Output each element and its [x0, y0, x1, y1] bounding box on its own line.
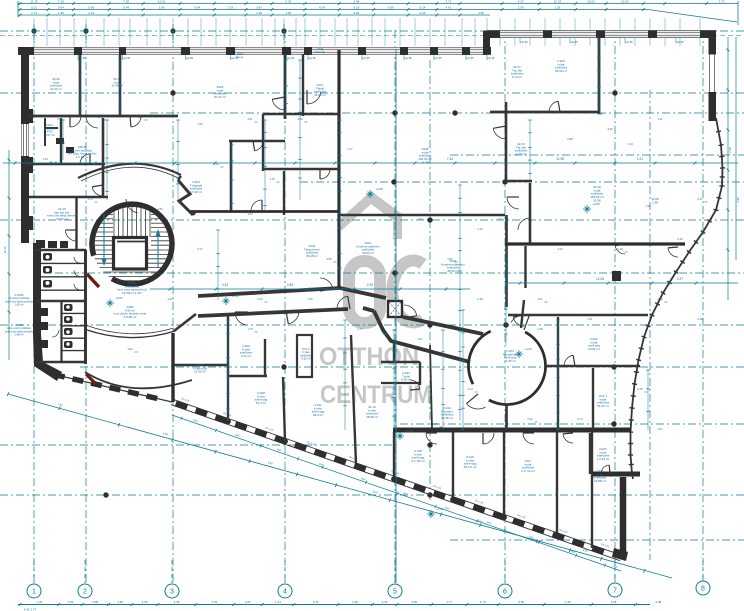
- svg-text:2.46: 2.46: [420, 11, 426, 15]
- svg-text:par 98: par 98: [78, 57, 86, 60]
- svg-text:0.95: 0.95: [382, 332, 388, 336]
- svg-text:3.18: 3.18: [697, 317, 703, 321]
- svg-text:1.44: 1.44: [213, 162, 219, 166]
- svg-text:1.91: 1.91: [212, 600, 218, 604]
- svg-text:2.61: 2.61: [247, 117, 253, 121]
- svg-text:2.86: 2.86: [326, 257, 332, 261]
- svg-text:6: 6: [503, 588, 507, 595]
- svg-text:1.75: 1.75: [247, 327, 253, 331]
- svg-text:2.71: 2.71: [719, 0, 725, 4]
- svg-text:2.12: 2.12: [477, 227, 483, 231]
- svg-text:10.50: 10.50: [587, 0, 595, 4]
- svg-text:3.45: 3.45: [607, 127, 613, 131]
- svg-text:par 98: par 98: [676, 41, 684, 44]
- svg-text:par 98: par 98: [487, 57, 495, 60]
- svg-text:1.18: 1.18: [617, 247, 623, 251]
- svg-text:3.44: 3.44: [247, 212, 253, 216]
- svg-text:7.40: 7.40: [447, 157, 453, 161]
- svg-text:1.82: 1.82: [117, 600, 123, 604]
- svg-text:2.41: 2.41: [537, 297, 543, 301]
- svg-text:0.39: 0.39: [57, 117, 63, 121]
- svg-text:+0.00: +0.00: [231, 294, 239, 298]
- svg-text:+4.68: +4.68: [592, 202, 600, 206]
- svg-text:1.66: 1.66: [67, 600, 73, 604]
- svg-text:par 98: par 98: [520, 41, 528, 44]
- svg-text:5.60: 5.60: [88, 6, 94, 10]
- svg-text:par 98: par 98: [308, 57, 316, 60]
- svg-text:5: 5: [393, 588, 397, 595]
- svg-text:8: 8: [701, 585, 705, 592]
- svg-text:3.98: 3.98: [736, 197, 740, 203]
- svg-text:3.99: 3.99: [297, 117, 303, 121]
- svg-text:2.33: 2.33: [227, 6, 233, 10]
- svg-text:par 98: par 98: [404, 57, 412, 60]
- svg-text:1.28: 1.28: [352, 600, 358, 604]
- svg-text:2.87: 2.87: [245, 600, 251, 604]
- svg-text:0.68: 0.68: [657, 297, 663, 301]
- svg-text:1.35: 1.35: [307, 297, 313, 301]
- svg-text:3.30: 3.30: [411, 600, 417, 604]
- svg-text:6.54: 6.54: [319, 6, 325, 10]
- svg-text:3.92: 3.92: [353, 11, 359, 15]
- svg-text:3: 3: [170, 588, 174, 595]
- svg-text:1.34: 1.34: [36, 600, 42, 604]
- svg-text:1.61: 1.61: [587, 317, 593, 321]
- svg-text:3.79: 3.79: [480, 600, 486, 604]
- svg-text:3.33: 3.33: [222, 283, 228, 287]
- svg-text:2.56: 2.56: [157, 207, 163, 211]
- svg-text:4.29: 4.29: [518, 0, 524, 4]
- svg-text:0243Szem.: 0243Szem.: [236, 52, 244, 59]
- svg-text:2.40: 2.40: [677, 237, 683, 241]
- svg-text:7.18: 7.18: [58, 0, 64, 4]
- svg-text:7.73: 7.73: [445, 0, 451, 4]
- svg-text:4.42 1.77: 4.42 1.77: [24, 608, 37, 611]
- svg-text:CENTRUM: CENTRUM: [320, 381, 432, 409]
- svg-text:0.42: 0.42: [527, 417, 533, 421]
- svg-text:11.16: 11.16: [30, 0, 38, 4]
- svg-text:par 98: par 98: [570, 41, 578, 44]
- svg-text:2.15: 2.15: [88, 11, 94, 15]
- svg-text:par 98: par 98: [466, 57, 474, 60]
- svg-text:6.29: 6.29: [286, 0, 292, 4]
- svg-text:1.64: 1.64: [417, 217, 423, 221]
- svg-text:3.67: 3.67: [256, 6, 262, 10]
- svg-text:1.81: 1.81: [286, 11, 292, 15]
- svg-text:3.56: 3.56: [611, 600, 617, 604]
- svg-text:5.49: 5.49: [123, 6, 129, 10]
- svg-text:par 98: par 98: [362, 57, 370, 60]
- svg-text:2.37: 2.37: [497, 217, 503, 221]
- svg-text:5.24: 5.24: [420, 6, 426, 10]
- svg-text:par 98: par 98: [434, 57, 442, 60]
- svg-text:2.67: 2.67: [417, 337, 423, 341]
- svg-text:1.80: 1.80: [159, 6, 165, 10]
- svg-text:2.35: 2.35: [367, 283, 373, 287]
- svg-text:1.36: 1.36: [174, 600, 180, 604]
- svg-text:0.30: 0.30: [257, 297, 263, 301]
- svg-text:3.37: 3.37: [677, 277, 683, 281]
- svg-text:1.24: 1.24: [275, 600, 281, 604]
- svg-text:10.33: 10.33: [554, 0, 562, 4]
- svg-text:11.98: 11.98: [556, 157, 564, 161]
- svg-text:4.55: 4.55: [478, 11, 484, 15]
- svg-text:2.15: 2.15: [269, 177, 275, 181]
- svg-text:7.28: 7.28: [123, 0, 129, 4]
- svg-text:1.77: 1.77: [446, 600, 452, 604]
- svg-text:5.64: 5.64: [58, 6, 64, 10]
- svg-text:2.38: 2.38: [655, 600, 661, 604]
- svg-text:1.41: 1.41: [657, 117, 663, 121]
- svg-text:2.86: 2.86: [92, 600, 98, 604]
- svg-text:1.99: 1.99: [565, 600, 571, 604]
- svg-text:5.22: 5.22: [31, 6, 37, 10]
- svg-text:2.71: 2.71: [313, 600, 319, 604]
- svg-text:2.98: 2.98: [728, 147, 732, 153]
- svg-text:6.59: 6.59: [388, 6, 394, 10]
- svg-text:1: 1: [32, 588, 36, 595]
- svg-text:1.38: 1.38: [58, 11, 64, 15]
- svg-text:+4.00: +4.00: [524, 347, 532, 351]
- svg-text:10.93: 10.93: [621, 0, 629, 4]
- svg-text:2.98: 2.98: [567, 137, 573, 141]
- svg-text:0.74: 0.74: [577, 417, 583, 421]
- svg-text:2.43: 2.43: [382, 600, 388, 604]
- svg-text:2.17: 2.17: [347, 147, 353, 151]
- svg-text:2.77: 2.77: [357, 327, 363, 331]
- svg-text:1.64: 1.64: [197, 122, 203, 126]
- svg-text:par 98: par 98: [625, 41, 633, 44]
- svg-text:+0.00: +0.00: [436, 507, 444, 511]
- svg-text:par 98: par 98: [186, 57, 194, 60]
- svg-text:2.89: 2.89: [287, 283, 293, 287]
- svg-text:par 98: par 98: [123, 57, 131, 60]
- svg-text:par 98: par 98: [287, 57, 295, 60]
- svg-text:1.25: 1.25: [256, 11, 262, 15]
- svg-text:5.64: 5.64: [194, 6, 200, 10]
- svg-text:3.23: 3.23: [167, 297, 173, 301]
- svg-text:1.13: 1.13: [627, 142, 633, 146]
- svg-text:+0.00: +0.00: [115, 296, 123, 300]
- svg-text:1.98: 1.98: [645, 204, 651, 208]
- svg-text:2.56: 2.56: [597, 112, 603, 116]
- svg-text:2.44: 2.44: [353, 0, 359, 4]
- svg-text:12.36: 12.36: [3, 246, 7, 253]
- svg-text:+0.00: +0.00: [405, 429, 413, 433]
- svg-text:2.18: 2.18: [477, 297, 483, 301]
- svg-text:2.39: 2.39: [518, 6, 524, 10]
- svg-text:12.081.98: 12.081.98: [651, 197, 659, 204]
- svg-text:+4.68: +4.68: [375, 187, 383, 191]
- svg-text:0.20: 0.20: [97, 115, 103, 119]
- svg-text:4: 4: [283, 588, 287, 595]
- svg-text:1.45: 1.45: [537, 327, 543, 331]
- svg-text:3.94: 3.94: [127, 347, 133, 351]
- svg-text:12.08: 12.08: [596, 277, 604, 281]
- svg-text:1.74: 1.74: [31, 11, 37, 15]
- svg-text:4.61: 4.61: [445, 6, 451, 10]
- svg-text:6.18: 6.18: [353, 6, 359, 10]
- svg-text:3.74: 3.74: [87, 197, 93, 201]
- svg-text:1.44: 1.44: [467, 387, 473, 391]
- svg-text:7: 7: [613, 587, 617, 594]
- svg-text:10.91: 10.91: [158, 0, 166, 4]
- svg-text:0.233T.anki6.38 m²: 0.233T.anki6.38 m²: [401, 371, 411, 382]
- svg-text:1.28: 1.28: [554, 6, 560, 10]
- svg-text:1.51: 1.51: [637, 157, 643, 161]
- svg-text:2.20: 2.20: [557, 247, 563, 251]
- svg-text:0.77: 0.77: [197, 247, 203, 251]
- svg-text:2.65: 2.65: [432, 422, 438, 426]
- svg-text:0.33: 0.33: [137, 115, 143, 119]
- svg-text:1.56: 1.56: [142, 600, 148, 604]
- svg-text:0.21: 0.21: [697, 197, 703, 201]
- svg-text:1.07: 1.07: [657, 427, 663, 431]
- svg-text:1.39: 1.39: [42, 157, 48, 161]
- svg-text:3.48: 3.48: [518, 600, 524, 604]
- svg-text:0.26: 0.26: [637, 387, 643, 391]
- svg-text:2: 2: [83, 588, 87, 595]
